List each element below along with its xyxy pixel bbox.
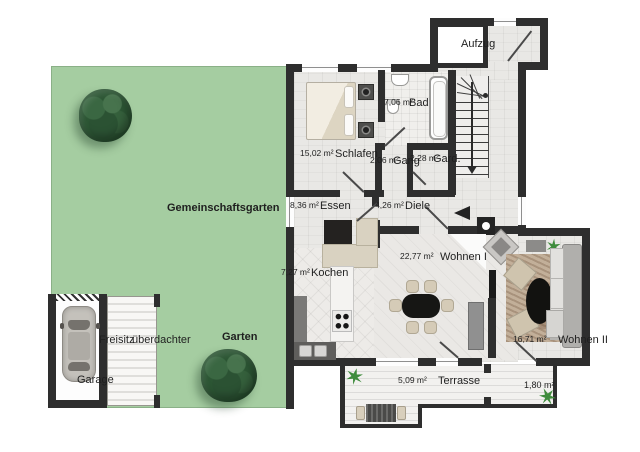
room-area: 2,28 m²	[410, 153, 439, 163]
room-area: 5,09 m²	[398, 375, 427, 385]
tree-icon	[201, 349, 257, 402]
room-area: 2,06 m²	[370, 155, 399, 165]
lowboard-icon	[468, 302, 484, 350]
nightstand-icon	[358, 122, 374, 138]
room-area: 7,27 m²	[281, 267, 310, 277]
window	[376, 358, 418, 366]
sink-basin	[314, 345, 327, 357]
wall	[378, 70, 385, 122]
nightstand-icon	[358, 84, 374, 100]
wall	[488, 298, 496, 358]
wall	[48, 294, 56, 408]
room-area: 8,36 m²	[290, 200, 319, 210]
wall	[418, 358, 436, 366]
area-text: 1,80 m²	[524, 380, 555, 391]
wall	[484, 397, 491, 405]
sink-icon	[391, 74, 409, 86]
window	[494, 18, 516, 26]
label-text: Garten	[222, 331, 257, 344]
wall	[448, 70, 456, 195]
terrace-border	[340, 424, 422, 428]
bathtub-icon	[429, 76, 448, 140]
sideboard-icon	[526, 240, 546, 252]
terrace-table-icon	[366, 404, 396, 422]
floor-plan: Aufzug Schlafen 1	[0, 0, 640, 452]
tree-icon	[79, 89, 132, 142]
room-area: 7,06 m²	[384, 97, 413, 107]
wall	[458, 358, 482, 366]
sink-basin	[299, 345, 312, 357]
room-area: 15,02 m²	[300, 148, 334, 158]
car-roof	[68, 332, 90, 360]
label-line1: überdachter	[132, 334, 191, 347]
wall	[286, 64, 302, 72]
wall	[379, 226, 419, 234]
stove-icon	[332, 310, 352, 332]
label-text: Gemeinschaftsgarten	[167, 202, 279, 215]
window	[357, 64, 391, 72]
label-line2: Freisitz	[99, 334, 134, 347]
chair-icon	[406, 280, 419, 293]
chair-icon	[424, 280, 437, 293]
room-name: Terrasse	[438, 375, 480, 388]
label-text: Garage	[77, 374, 114, 387]
stair-direction-line	[471, 82, 473, 168]
wall	[154, 294, 160, 307]
pillow-icon	[344, 86, 354, 108]
garage-door-icon	[56, 294, 99, 301]
window	[436, 358, 458, 366]
pillow-icon	[344, 114, 354, 136]
wall	[518, 62, 526, 197]
chair-icon	[406, 321, 419, 334]
room-area: 16,71 m²	[513, 334, 547, 344]
wall	[154, 395, 160, 408]
room-name: Wohnen II	[558, 334, 608, 347]
kitchen-counter	[322, 244, 378, 268]
room-name: Diele	[405, 200, 430, 213]
elevator-label-text: Aufzug	[461, 38, 495, 51]
terrace-border	[340, 360, 345, 428]
terrace-chair-icon	[356, 406, 365, 420]
covered-seating-area	[107, 296, 157, 406]
chair-icon	[441, 299, 454, 312]
dining-table-icon	[402, 294, 440, 318]
stair-arrow-icon	[467, 166, 477, 174]
wall	[410, 190, 455, 197]
chair-icon	[389, 299, 402, 312]
room-name: Wohnen I	[440, 251, 487, 264]
wall	[338, 64, 357, 72]
wall	[448, 226, 478, 234]
room-name: Kochen	[311, 267, 348, 280]
wall	[286, 190, 340, 197]
wall	[536, 358, 590, 366]
chair-icon	[424, 321, 437, 334]
cabinet-icon	[294, 296, 307, 342]
wall	[484, 364, 491, 373]
window	[302, 64, 338, 72]
wall	[99, 294, 107, 408]
room-area: 4,26 m²	[375, 200, 404, 210]
kitchen-counter	[356, 218, 378, 246]
room-name: Essen	[320, 200, 351, 213]
room-area: 22,77 m²	[400, 251, 434, 261]
kitchen-block	[324, 220, 352, 244]
car-icon	[62, 306, 96, 382]
wall	[48, 400, 107, 408]
column-icon	[477, 217, 495, 235]
window	[518, 197, 526, 225]
tv-unit-icon	[489, 270, 496, 298]
car-mirror	[96, 323, 100, 329]
car-rear-window	[68, 362, 90, 371]
terrace-chair-icon	[397, 406, 406, 420]
wall	[518, 228, 590, 236]
stair-start-dot	[483, 93, 488, 98]
car-mirror	[60, 323, 64, 329]
car-windshield	[68, 320, 90, 330]
sofa-icon	[562, 244, 582, 348]
